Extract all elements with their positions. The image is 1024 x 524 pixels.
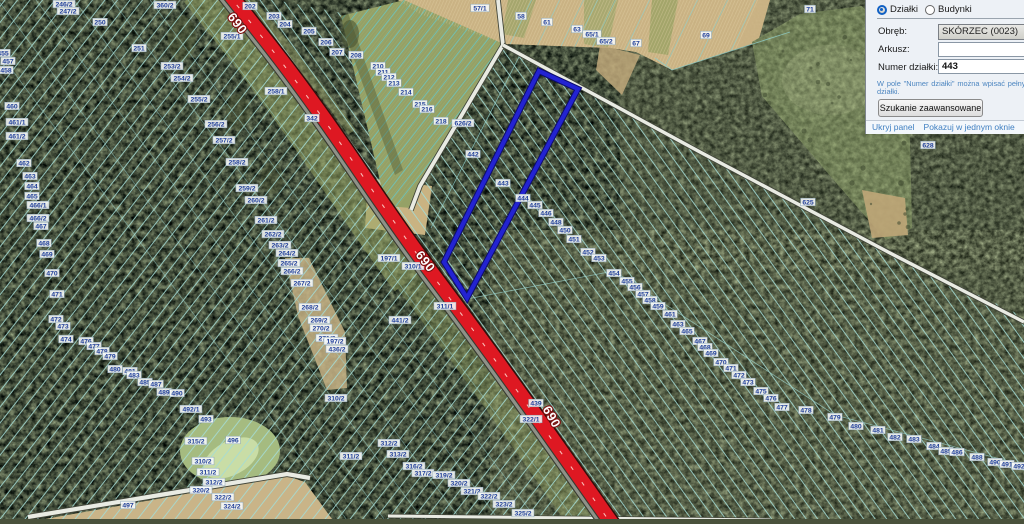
svg-text:216: 216 [421,106,433,113]
svg-text:469: 469 [705,350,717,357]
svg-text:443: 443 [497,180,509,187]
svg-text:625: 625 [802,199,814,206]
svg-text:261/2: 261/2 [257,217,274,224]
svg-text:479: 479 [829,414,841,421]
svg-text:471: 471 [51,291,63,298]
svg-text:468: 468 [38,240,50,247]
svg-text:315/2: 315/2 [187,438,204,445]
svg-text:442: 442 [467,151,479,158]
svg-text:439: 439 [530,400,542,407]
svg-text:466/1: 466/1 [29,202,46,209]
svg-text:483: 483 [908,436,920,443]
svg-text:451: 451 [568,236,580,243]
svg-text:69: 69 [702,32,710,39]
svg-text:462: 462 [18,160,30,167]
svg-text:441/2: 441/2 [391,317,408,324]
svg-text:444: 444 [517,195,529,202]
svg-text:265/2: 265/2 [280,260,297,267]
svg-text:445: 445 [529,202,541,209]
svg-text:478: 478 [800,407,812,414]
svg-text:270/2: 270/2 [312,325,329,332]
svg-text:65/2: 65/2 [599,38,612,45]
svg-text:461/1: 461/1 [8,119,25,126]
svg-text:67: 67 [632,40,640,47]
svg-text:342: 342 [306,115,318,122]
svg-text:492/1: 492/1 [182,406,199,413]
svg-text:264/2: 264/2 [278,250,295,257]
svg-text:57/1: 57/1 [473,5,486,12]
svg-text:250: 250 [94,19,106,26]
svg-text:262/2: 262/2 [264,231,281,238]
svg-text:253/2: 253/2 [163,63,180,70]
svg-text:323/2: 323/2 [495,501,512,508]
svg-text:258/1: 258/1 [267,88,284,95]
svg-text:463: 463 [24,173,36,180]
svg-text:205: 205 [303,28,315,35]
svg-text:310/2: 310/2 [194,458,211,465]
svg-text:473: 473 [742,379,754,386]
svg-text:480: 480 [109,366,121,373]
svg-text:457: 457 [2,58,14,65]
svg-text:254/2: 254/2 [173,75,190,82]
svg-text:628: 628 [922,142,934,149]
svg-text:450: 450 [559,227,571,234]
svg-text:470: 470 [46,270,58,277]
svg-text:482: 482 [889,434,901,441]
svg-text:58: 58 [517,13,525,20]
svg-text:320/2: 320/2 [450,480,467,487]
svg-text:218: 218 [435,118,447,125]
svg-text:322/1: 322/1 [522,416,539,423]
svg-text:484: 484 [928,443,940,450]
svg-text:255/2: 255/2 [190,96,207,103]
svg-text:460: 460 [6,103,18,110]
svg-text:467: 467 [35,223,47,230]
svg-text:489: 489 [158,389,170,396]
svg-text:197/2: 197/2 [326,338,343,345]
svg-text:446: 446 [540,210,552,217]
svg-text:458: 458 [0,67,12,74]
svg-text:260/2: 260/2 [247,197,264,204]
svg-text:492: 492 [1013,463,1024,470]
svg-text:203: 203 [268,13,280,20]
svg-text:204: 204 [279,21,291,28]
svg-text:259/2: 259/2 [238,185,255,192]
svg-text:208: 208 [350,52,362,59]
svg-text:197/1: 197/1 [380,255,397,262]
svg-text:71: 71 [806,6,814,13]
svg-text:269/2: 269/2 [310,317,327,324]
svg-text:454: 454 [608,270,620,277]
svg-text:257/2: 257/2 [215,137,232,144]
svg-text:311/2: 311/2 [200,469,217,476]
svg-text:311/2: 311/2 [343,453,360,460]
svg-text:312/2: 312/2 [380,440,397,447]
svg-text:465: 465 [681,328,693,335]
svg-text:476: 476 [765,395,777,402]
svg-text:480: 480 [850,423,862,430]
svg-text:313/2: 313/2 [389,451,406,458]
svg-text:479: 479 [104,353,116,360]
svg-text:459: 459 [652,303,664,310]
svg-text:455: 455 [0,50,9,57]
svg-text:474: 474 [60,336,72,343]
svg-text:461/2: 461/2 [8,133,25,140]
svg-text:266/2: 266/2 [283,268,300,275]
svg-text:448: 448 [550,219,562,226]
svg-text:206: 206 [320,39,332,46]
svg-text:312/2: 312/2 [205,479,222,486]
svg-text:202: 202 [244,3,256,10]
svg-text:496: 496 [227,437,239,444]
svg-text:319/2: 319/2 [435,472,452,479]
svg-text:436/2: 436/2 [328,346,345,353]
svg-text:263/2: 263/2 [271,242,288,249]
svg-text:311/1: 311/1 [437,303,454,310]
svg-text:247/2: 247/2 [59,8,76,15]
svg-text:626/2: 626/2 [454,120,471,127]
svg-text:322/2: 322/2 [480,493,497,500]
svg-text:490: 490 [989,459,1001,466]
svg-text:258/2: 258/2 [228,159,245,166]
svg-text:466/2: 466/2 [29,215,46,222]
svg-text:497: 497 [122,502,134,509]
svg-text:61: 61 [543,19,551,26]
svg-text:486: 486 [951,449,963,456]
svg-text:251: 251 [133,45,145,52]
svg-text:310/2: 310/2 [327,395,344,402]
svg-text:214: 214 [400,89,412,96]
svg-text:481: 481 [872,427,884,434]
svg-text:63: 63 [573,26,581,33]
svg-text:469: 469 [41,251,53,258]
svg-text:473: 473 [57,323,69,330]
svg-text:491: 491 [1001,461,1013,468]
svg-text:487: 487 [150,381,162,388]
svg-text:453: 453 [593,255,605,262]
svg-text:213: 213 [388,80,400,87]
svg-text:317/2: 317/2 [414,470,431,477]
svg-text:322/2: 322/2 [214,494,231,501]
svg-text:268/2: 268/2 [301,304,318,311]
svg-text:493: 493 [200,416,212,423]
svg-text:325/2: 325/2 [514,510,531,517]
svg-text:256/2: 256/2 [207,121,224,128]
svg-text:488: 488 [971,454,983,461]
svg-text:320/2: 320/2 [192,487,209,494]
svg-text:465: 465 [26,193,38,200]
svg-text:360/2: 360/2 [156,2,173,9]
svg-text:461: 461 [664,311,676,318]
svg-text:477: 477 [776,404,788,411]
svg-text:207: 207 [331,49,343,56]
svg-text:267/2: 267/2 [293,280,310,287]
svg-text:464: 464 [26,183,38,190]
svg-text:324/2: 324/2 [223,503,240,510]
svg-text:490: 490 [171,390,183,397]
